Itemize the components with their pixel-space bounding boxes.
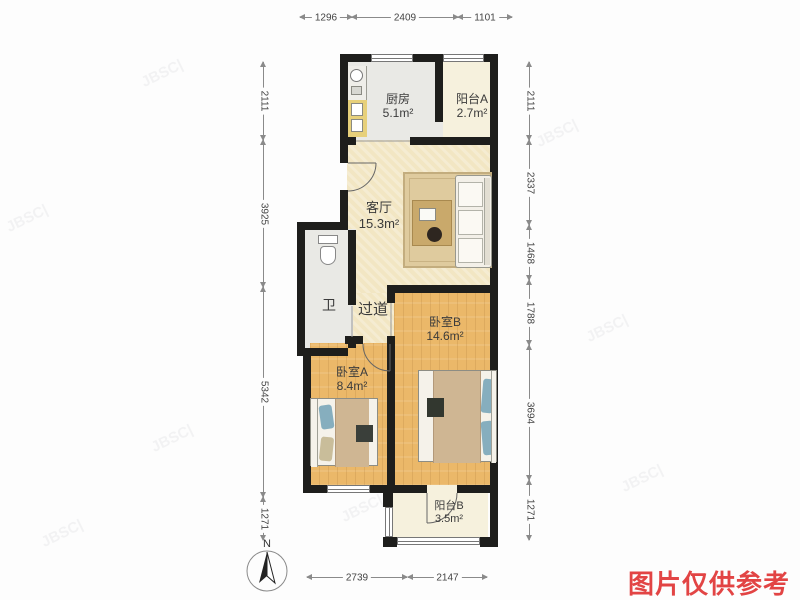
wall (410, 137, 498, 145)
bed-tray (356, 425, 373, 442)
dimension-right-1: 2111 (529, 62, 530, 140)
balcony-b-window (397, 537, 480, 545)
dimension-top-1: 1296 (300, 17, 352, 18)
stove-icon (351, 103, 363, 116)
sofa-back (484, 178, 490, 265)
dimension-right-4: 1788 (529, 280, 530, 345)
wall (340, 54, 348, 163)
wall (435, 54, 443, 122)
bedroom-a-window (327, 485, 370, 493)
dimension-right-5: 3694 (529, 345, 530, 480)
wall (480, 537, 498, 547)
room-label-living: 客厅15.3m² (347, 200, 411, 232)
burner-icon (351, 86, 362, 95)
watermark: JBSC| (39, 516, 86, 551)
room-label-corridor: 过道 (352, 303, 394, 317)
toilet-icon (320, 246, 336, 265)
blanket (433, 371, 481, 463)
sofa-cushion (458, 238, 483, 263)
wall (387, 285, 498, 293)
wall (297, 222, 305, 356)
dimension-left-2: 3925 (263, 140, 264, 287)
balcony-a-window (443, 54, 484, 62)
watermark: JBSC| (584, 311, 631, 346)
watermark: JBSC| (619, 461, 666, 496)
dimension-top-2: 2409 (352, 17, 458, 18)
room-label-kitchen: 厨房5.1m² (368, 92, 428, 120)
watermark: JBSC| (139, 56, 186, 91)
stove-icon (351, 119, 363, 132)
kitchen-window (371, 54, 413, 62)
dimension-bottom-1: 2739 (307, 577, 407, 578)
sink-icon (350, 69, 363, 82)
room-label-bedroom-b: 卧室B14.6m² (413, 315, 477, 343)
floor-plan-page: N 厨房5.1m² 阳台A2.7m² 客厅15.3m² 卫 过道 卧室B14.6… (0, 0, 800, 600)
dimension-left-1: 2111 (263, 62, 264, 140)
dimension-bottom-2: 2147 (408, 577, 487, 578)
room-label-balcony-b: 阳台B3.5m² (420, 500, 478, 526)
dimension-right-6: 1271 (529, 480, 530, 540)
coffee-table (412, 200, 452, 246)
wall (387, 293, 395, 303)
dimension-right-2: 2337 (529, 140, 530, 225)
balcony-b-side-window (385, 507, 393, 537)
laptop-icon (419, 208, 436, 221)
bed-tray (427, 398, 444, 417)
sofa-cushion (458, 210, 483, 235)
room-label-balcony-a: 阳台A2.7m² (444, 92, 500, 120)
watermark: JBSC| (534, 116, 581, 151)
counter-lower (348, 100, 367, 137)
watermark: JBSC| (149, 421, 196, 456)
headboard (311, 399, 318, 467)
wall (387, 336, 395, 493)
room-label-bathroom: 卫 (318, 298, 340, 312)
wall (348, 230, 356, 305)
dimension-left-3: 5342 (263, 287, 264, 497)
wall (457, 485, 498, 493)
headboard (491, 371, 496, 463)
wall (340, 137, 356, 145)
kitchen-counter (348, 66, 367, 137)
wall (345, 336, 363, 344)
dimension-top-3: 1101 (458, 17, 512, 18)
dimension-right-3: 1468 (529, 225, 530, 280)
sofa (455, 175, 492, 268)
plant-icon (427, 227, 442, 242)
toilet-icon (318, 235, 338, 244)
bed-a (310, 398, 378, 466)
watermark: JBSC| (339, 491, 386, 526)
compass-icon (247, 551, 287, 591)
sofa-cushion (458, 182, 483, 207)
bed-b (418, 370, 497, 462)
wall (383, 537, 397, 547)
pillow (319, 436, 334, 461)
wall (303, 485, 327, 493)
watermark: JBSC| (4, 201, 51, 236)
pillow (318, 404, 334, 430)
room-label-bedroom-a: 卧室A8.4m² (322, 365, 382, 393)
wall (387, 485, 427, 493)
disclaimer-text: 图片仅供参考 (628, 564, 790, 600)
dimension-left-4: 1271 (263, 497, 264, 540)
